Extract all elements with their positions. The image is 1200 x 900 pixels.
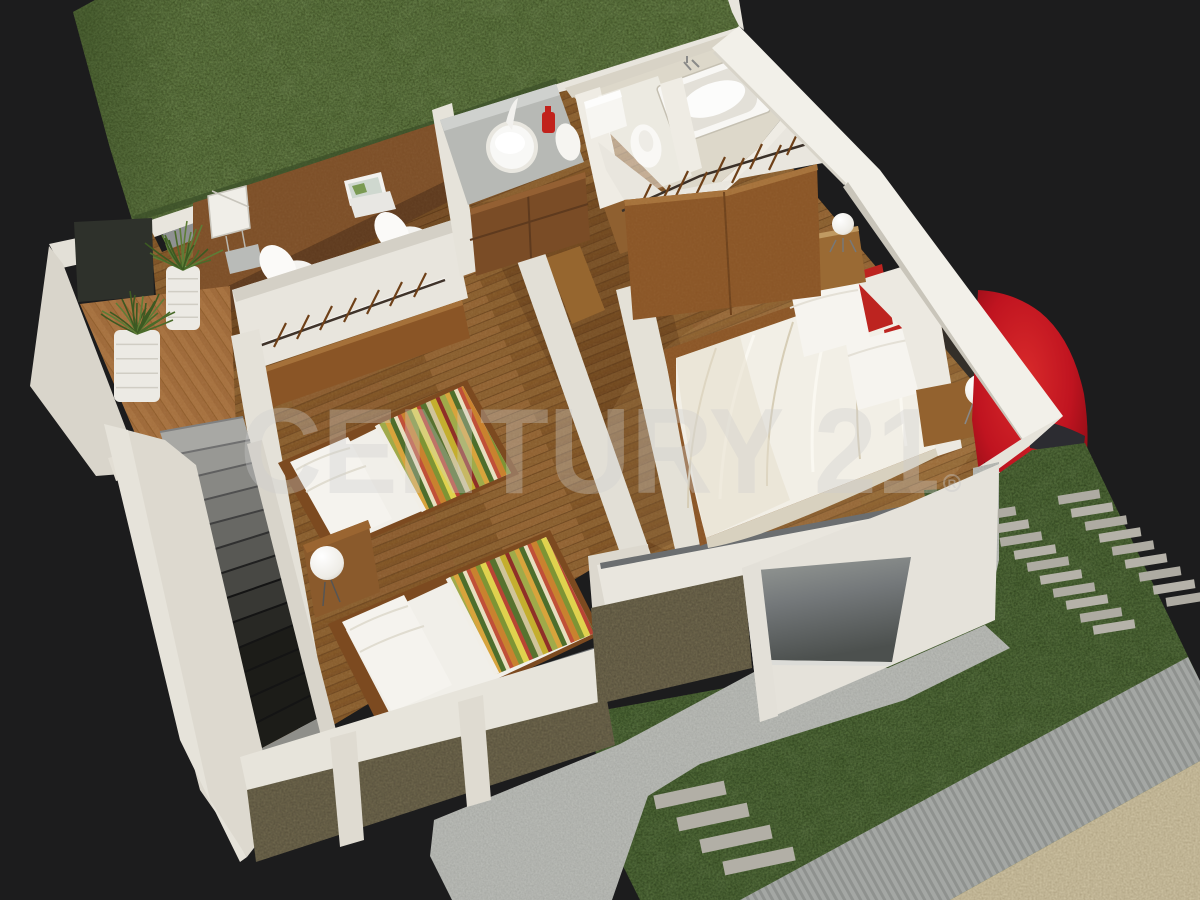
svg-text:R: R <box>948 477 957 491</box>
svg-text:CENTURY 21: CENTURY 21 <box>240 383 940 519</box>
